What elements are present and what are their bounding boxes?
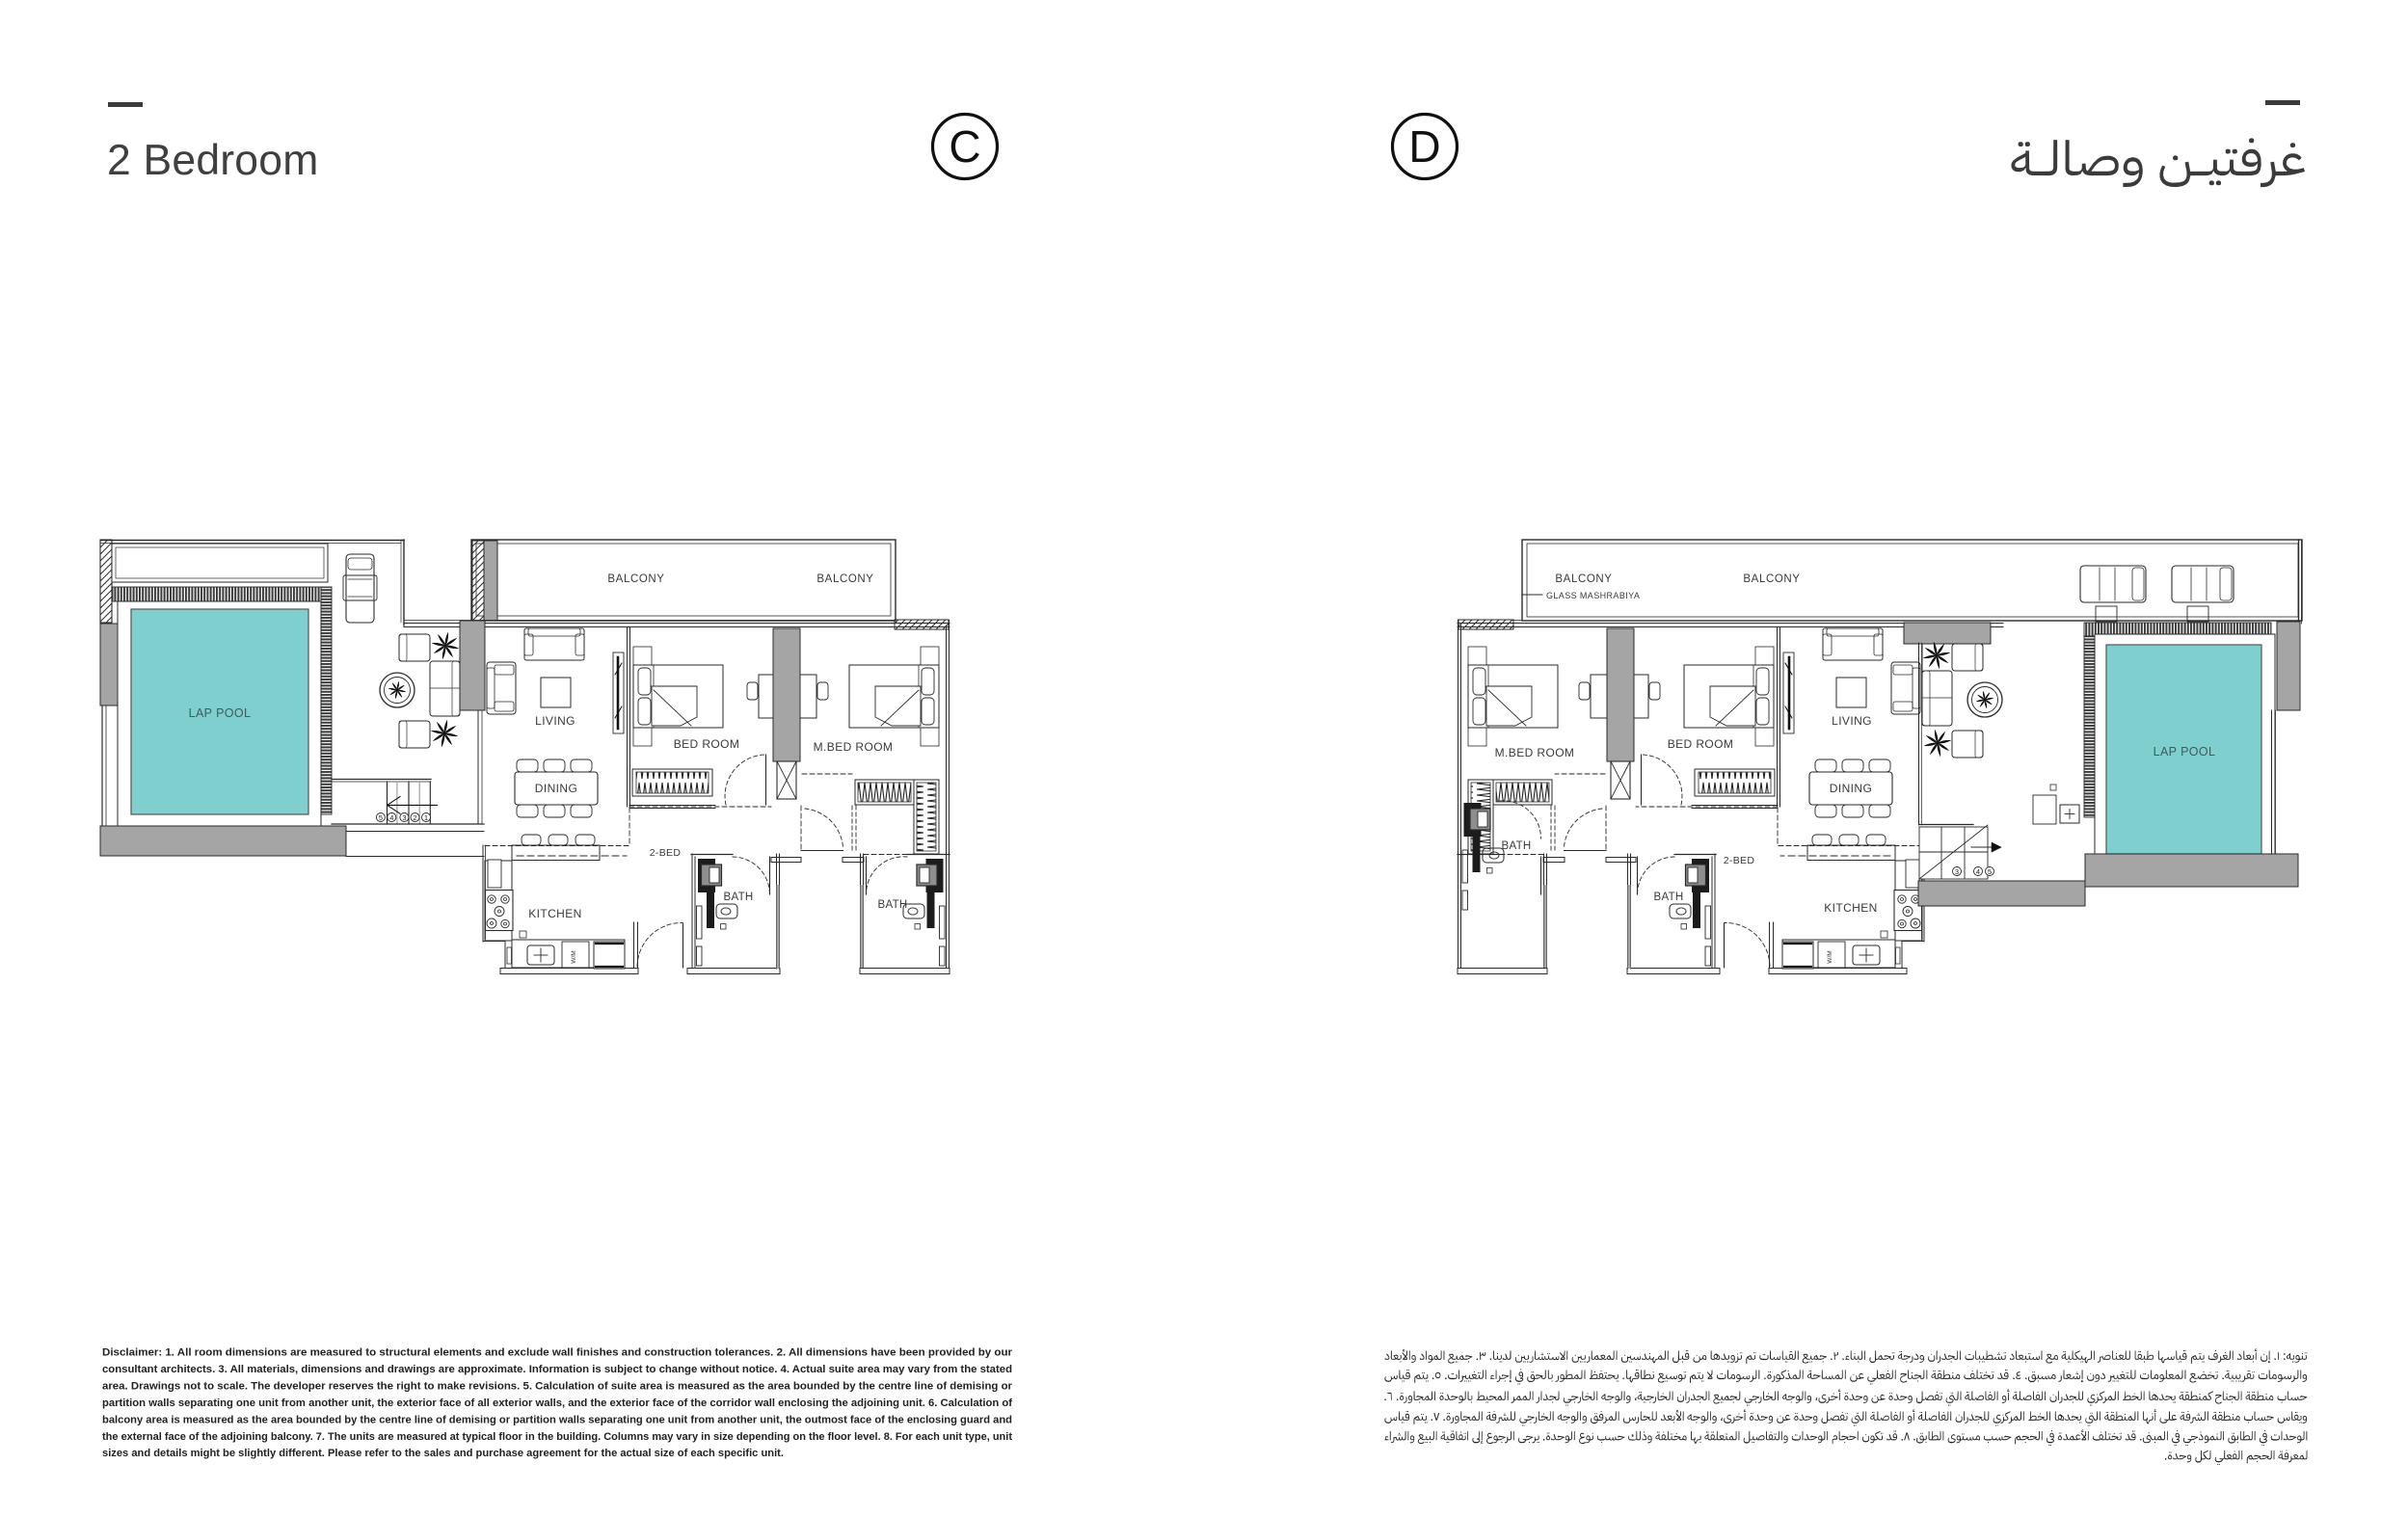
svg-text:LAP POOL: LAP POOL — [189, 706, 252, 720]
svg-text:BED ROOM: BED ROOM — [1668, 737, 1734, 751]
svg-text:5: 5 — [379, 813, 383, 822]
svg-text:2: 2 — [413, 813, 416, 822]
svg-text:KITCHEN: KITCHEN — [1824, 901, 1877, 915]
svg-text:DINING: DINING — [1830, 782, 1872, 795]
svg-text:BATH: BATH — [1653, 892, 1683, 903]
svg-text:2-BED: 2-BED — [650, 847, 682, 859]
svg-text:balcony area is measured as th: balcony area is measured as the area bou… — [102, 1414, 1012, 1425]
svg-text:BED ROOM: BED ROOM — [674, 737, 740, 751]
svg-text:3: 3 — [1955, 867, 1959, 876]
svg-text:4: 4 — [389, 813, 393, 822]
svg-text:sizes and details might be sli: sizes and details might be slightly diff… — [102, 1448, 784, 1459]
svg-text:5: 5 — [1988, 867, 1992, 876]
svg-text:BATH: BATH — [1501, 840, 1531, 852]
svg-text:2-BED: 2-BED — [1724, 855, 1755, 866]
svg-text:DINING: DINING — [535, 782, 577, 795]
svg-text:M.BED ROOM: M.BED ROOM — [1495, 746, 1575, 759]
svg-text:1: 1 — [424, 813, 428, 822]
svg-text:4: 4 — [1976, 867, 1980, 876]
svg-text:BALCONY: BALCONY — [816, 573, 873, 585]
svg-text:BALCONY: BALCONY — [1743, 573, 1800, 585]
svg-text:W/M: W/M — [571, 950, 577, 963]
svg-text:Disclaimer: 1. All room dimens: Disclaimer: 1. All room dimensions are m… — [102, 1347, 1013, 1359]
svg-text:KITCHEN: KITCHEN — [528, 907, 581, 920]
svg-text:BALCONY: BALCONY — [607, 573, 664, 585]
svg-text:LIVING: LIVING — [1832, 714, 1872, 728]
svg-text:BATH: BATH — [723, 892, 753, 903]
svg-text:partition walls separating one: partition walls separating one unit from… — [102, 1397, 1012, 1409]
svg-text:LAP POOL: LAP POOL — [2154, 745, 2216, 758]
svg-text:3: 3 — [402, 813, 406, 822]
svg-text:BALCONY: BALCONY — [1555, 573, 1612, 585]
svg-text:GLASS MASHRABIYA: GLASS MASHRABIYA — [1546, 591, 1640, 600]
svg-text:2 Bedroom: 2 Bedroom — [107, 137, 318, 184]
svg-text:consultant architects. 3. All: consultant architects. 3. All materials,… — [102, 1364, 1012, 1375]
svg-text:W/M: W/M — [1827, 950, 1833, 963]
svg-text:M.BED ROOM: M.BED ROOM — [814, 740, 894, 754]
svg-text:LIVING: LIVING — [535, 714, 575, 728]
svg-text:BATH: BATH — [877, 899, 907, 911]
svg-text:C: C — [949, 121, 980, 172]
svg-text:area. Drawings not to scale. T: area. Drawings not to scale. The develop… — [102, 1380, 1013, 1392]
svg-text:D: D — [1408, 121, 1440, 172]
svg-text:the external face of the adjoi: the external face of the adjoining balco… — [102, 1431, 1012, 1443]
